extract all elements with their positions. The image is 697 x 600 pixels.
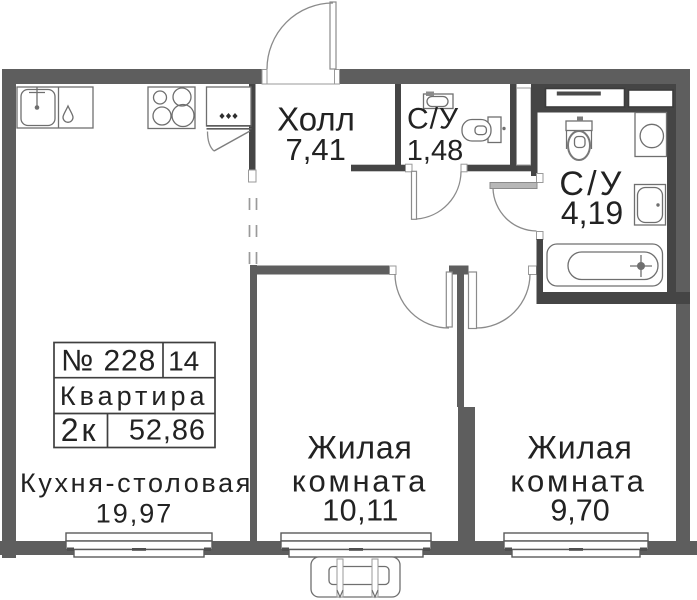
svg-text:9,70: 9,70 (550, 494, 609, 528)
svg-text:52,86: 52,86 (129, 415, 206, 447)
svg-text:Жилая: Жилая (527, 430, 632, 466)
svg-text:14: 14 (168, 346, 199, 377)
svg-text:С/У: С/У (407, 103, 459, 136)
svg-text:Кухня-столовая: Кухня-столовая (20, 468, 253, 498)
svg-text:2к: 2к (61, 412, 99, 448)
svg-text:№ 228: № 228 (61, 345, 156, 378)
svg-text:10,11: 10,11 (322, 494, 399, 528)
svg-text:4,19: 4,19 (561, 195, 623, 231)
svg-text:7,41: 7,41 (286, 132, 346, 167)
svg-text:1,48: 1,48 (407, 135, 463, 167)
svg-text:Квартира: Квартира (60, 381, 209, 411)
svg-text:Жилая: Жилая (307, 430, 412, 466)
svg-text:19,97: 19,97 (96, 499, 174, 529)
